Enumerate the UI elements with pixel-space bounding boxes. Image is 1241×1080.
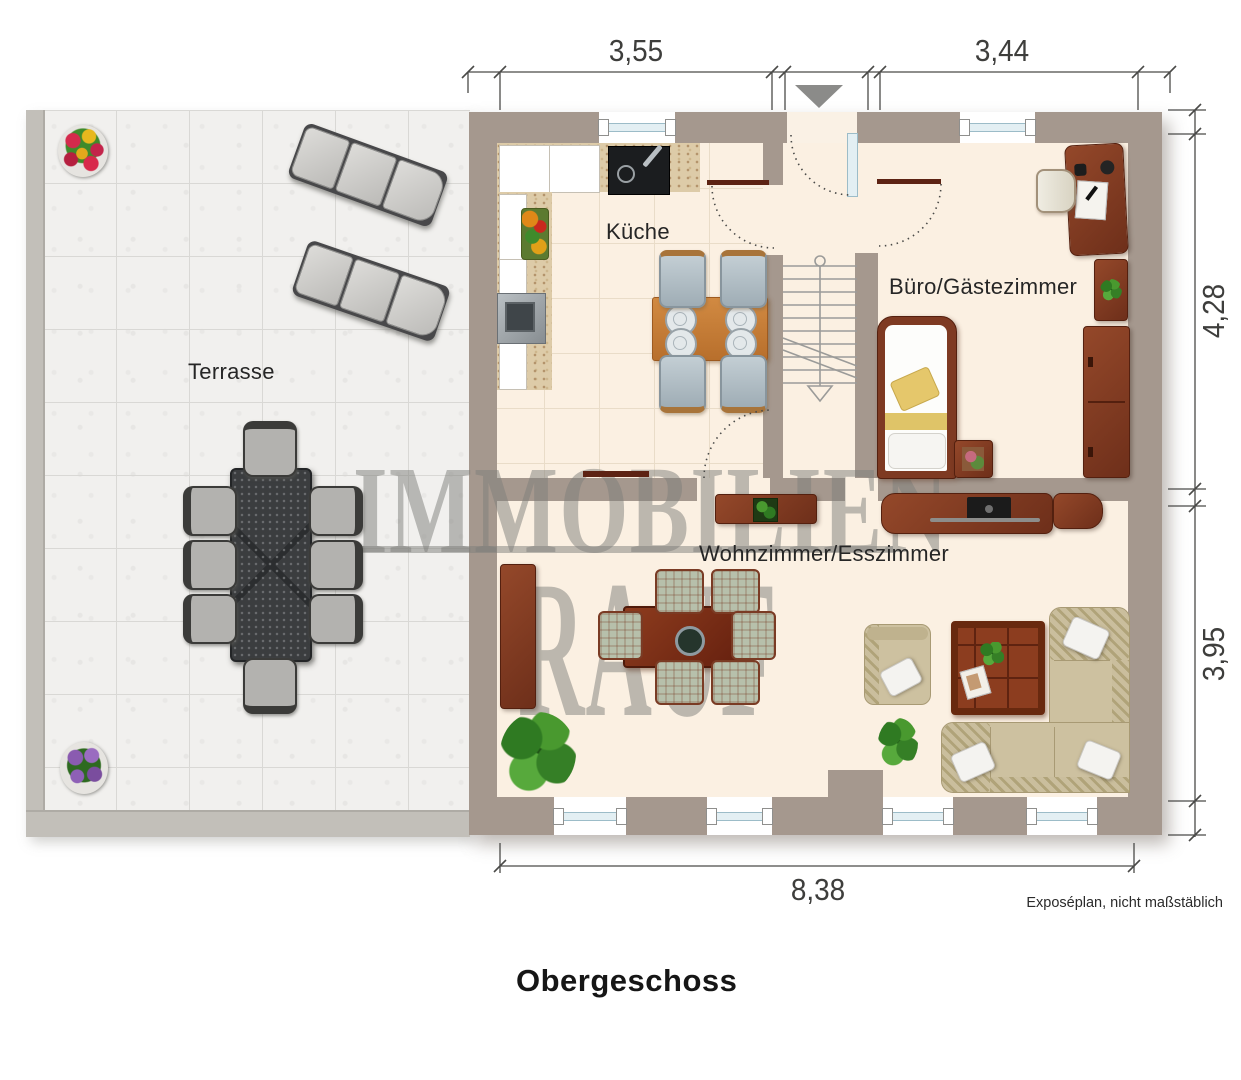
dining-chair <box>655 569 704 614</box>
magazine <box>959 665 991 700</box>
window-frame <box>1026 808 1037 825</box>
dining-chair <box>711 569 760 614</box>
dimension-right-lower: 3,95 <box>1196 614 1232 695</box>
kitchen-chair <box>720 250 767 308</box>
dimension-top-left: 3,55 <box>591 33 681 69</box>
wall-segment <box>1097 797 1162 835</box>
terrace-chair <box>309 594 363 644</box>
terrace-chair <box>183 540 237 590</box>
flower-pot <box>58 125 108 177</box>
window <box>883 797 953 835</box>
window-frame <box>665 119 676 136</box>
door-leaf <box>583 471 649 477</box>
plan-footnote: Exposéplan, nicht maßstäblich <box>923 895 1223 911</box>
room-label-kitchen: Küche <box>606 219 670 245</box>
terrace-chair <box>183 486 237 536</box>
terrace-wall-left <box>26 110 45 835</box>
wall-segment <box>857 112 960 143</box>
window-frame <box>959 119 970 136</box>
dining-chair <box>711 660 760 705</box>
sideboard <box>1053 493 1103 529</box>
door-leaf <box>707 180 769 185</box>
window-glass <box>600 123 674 132</box>
wall-segment <box>772 797 883 835</box>
window-frame <box>762 808 773 825</box>
terrace-chair <box>309 540 363 590</box>
entrance-arrow-icon <box>795 85 843 108</box>
window-glass <box>884 812 952 821</box>
window-frame <box>616 808 627 825</box>
window-glass <box>555 812 625 821</box>
kitchen-chair <box>720 355 767 413</box>
window <box>554 797 626 835</box>
soundbar <box>930 518 1040 522</box>
wall-segment <box>953 797 1027 835</box>
window-frame <box>882 808 893 825</box>
terrace-chair <box>243 421 297 477</box>
wall-pillar <box>828 770 883 800</box>
window-frame <box>553 808 564 825</box>
wall-segment <box>469 797 554 835</box>
dimension-bottom: 8,38 <box>773 872 863 908</box>
window-frame <box>598 119 609 136</box>
flower-pot <box>60 742 108 794</box>
plant <box>500 712 576 794</box>
window <box>960 112 1035 143</box>
kitchen-sink <box>608 146 670 195</box>
terrace-wall-bottom <box>26 810 470 837</box>
window-glass <box>1028 812 1096 821</box>
nightstand <box>954 440 993 478</box>
room-label-terrace: Terrasse <box>188 359 275 385</box>
window-frame <box>1087 808 1098 825</box>
armchair <box>864 624 931 705</box>
window <box>707 797 772 835</box>
wall-segment <box>763 112 783 185</box>
room-label-office: Büro/Gästezimmer <box>889 274 1077 300</box>
vegetable-basket <box>521 208 549 260</box>
dining-chair <box>731 611 776 660</box>
window-frame <box>1025 119 1036 136</box>
wall-right <box>1128 112 1162 835</box>
terrace-chair <box>183 594 237 644</box>
kitchen-chair <box>659 250 706 308</box>
page-title: Obergeschoss <box>516 963 737 999</box>
plant <box>878 718 918 768</box>
sideboard <box>500 564 536 709</box>
sofa-pillow <box>1076 739 1122 781</box>
desk-chair <box>1036 169 1076 213</box>
corner-sofa <box>941 722 1130 793</box>
room-label-living: Wohnzimmer/Esszimmer <box>699 541 949 567</box>
window <box>1027 797 1097 835</box>
office-cabinet <box>1094 259 1128 321</box>
dimension-top-right: 3,44 <box>957 33 1047 69</box>
window <box>599 112 675 143</box>
coffee-table <box>951 621 1045 715</box>
floor-plan: IMMOBILIEN RAUF <box>0 0 1241 1080</box>
terrace-chair <box>243 658 297 714</box>
entrance-door <box>847 133 858 197</box>
wardrobe <box>1083 326 1130 478</box>
kitchen-chair <box>659 355 706 413</box>
stove <box>497 293 546 344</box>
bed <box>877 316 957 479</box>
sideboard <box>715 494 817 524</box>
window-frame <box>706 808 717 825</box>
dining-chair <box>655 660 704 705</box>
terrace-chair <box>309 486 363 536</box>
tv-lowboard <box>881 493 1053 534</box>
dining-chair <box>598 611 643 660</box>
window-glass <box>961 123 1034 132</box>
window-frame <box>943 808 954 825</box>
terrace-table <box>230 468 312 662</box>
door-leaf <box>877 179 941 184</box>
kitchen-cabinet <box>499 145 600 193</box>
wall-segment <box>626 797 707 835</box>
dimension-right-upper: 4,28 <box>1196 271 1232 352</box>
